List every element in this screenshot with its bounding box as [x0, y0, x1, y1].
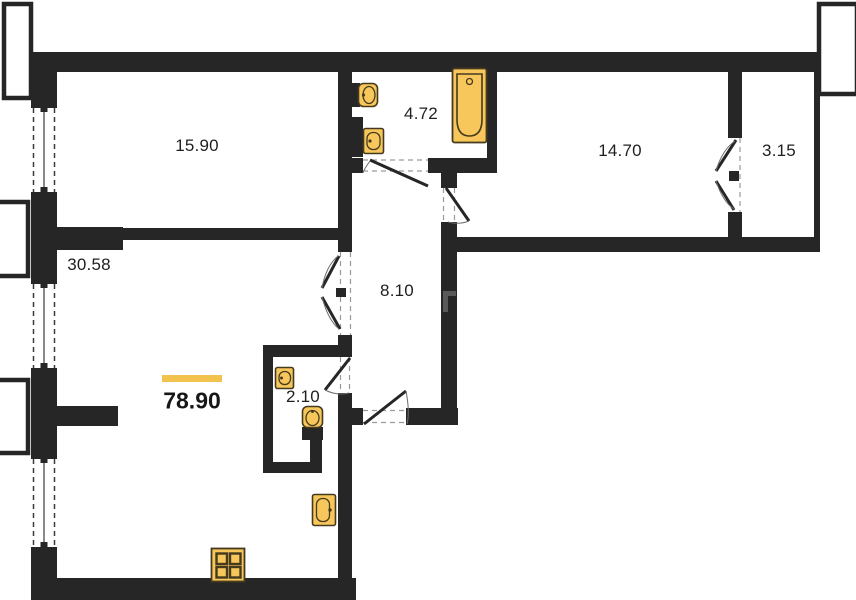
total-area-label: 78.90	[163, 388, 221, 415]
wall-hallway-bottom-left	[350, 408, 363, 425]
wall-bathroom-bottom-right	[428, 158, 497, 173]
stove-icon	[212, 549, 245, 582]
wall-left-3	[31, 368, 57, 459]
exterior-box-top-left	[4, 4, 31, 98]
windows	[34, 106, 55, 548]
wall-spine-lower	[338, 393, 352, 583]
walls	[31, 52, 820, 600]
room-label-hallway: 8.10	[380, 281, 414, 301]
wall-balcony-upper	[728, 72, 742, 138]
door-room-top-right	[444, 188, 470, 223]
wall-bottom	[31, 578, 356, 600]
floor-plan: 15.90 4.72 14.70 3.15 30.58 8.10 2.10 78…	[0, 0, 856, 600]
room-label-top-left: 15.90	[175, 136, 219, 156]
window-3	[34, 457, 55, 548]
wall-bath-sink-partition	[348, 117, 363, 157]
exterior-box-top-right	[819, 4, 856, 94]
room-label-balcony: 3.15	[762, 141, 796, 161]
wall-kitchen-stub	[57, 406, 118, 426]
window-1	[34, 106, 55, 193]
door-bathroom	[363, 160, 428, 186]
door-double-living	[322, 252, 351, 335]
wc-toilet-icon	[303, 407, 323, 428]
wall-room2-bottom	[441, 237, 820, 252]
room-label-top-right: 14.70	[598, 141, 642, 161]
room-label-living: 30.58	[67, 255, 111, 275]
wall-wc-toilet-back	[302, 427, 323, 440]
wall-hallway-right-lower	[441, 222, 457, 425]
window-2	[34, 282, 55, 369]
wall-left-2	[31, 192, 57, 284]
wc-sink-icon	[276, 368, 294, 389]
wall-top	[31, 52, 820, 72]
wall-bathroom-bottom-left	[338, 158, 363, 173]
door-balcony	[716, 138, 740, 212]
wall-balcony-right	[814, 72, 820, 248]
wall-hallway-bottom-right	[406, 408, 458, 425]
door-hallway-living	[363, 391, 408, 424]
wall-hallway-right-upper	[441, 158, 457, 188]
kitchen-sink-icon	[313, 495, 336, 526]
wall-bathtub-side	[487, 72, 497, 173]
bathtub-icon	[453, 69, 487, 143]
sink-icon	[364, 129, 384, 154]
wall-wc-left	[263, 345, 273, 473]
exterior-box-mid-left	[0, 202, 28, 276]
wall-wc-duct	[310, 440, 322, 473]
total-area-highlight	[162, 375, 222, 382]
wall-left-1	[31, 52, 57, 108]
exterior-box-bottom-left	[0, 380, 28, 453]
toilet-icon	[359, 84, 378, 107]
room-label-bathroom: 4.72	[404, 104, 438, 124]
wall-wc-top	[263, 345, 352, 357]
wall-room1-bottom-thick	[57, 227, 123, 250]
room-label-wc: 2.10	[286, 387, 320, 407]
floor-plan-drawing	[0, 0, 856, 600]
wall-balcony-lower	[728, 212, 742, 252]
wall-room1-bottom-thin	[123, 228, 338, 240]
door-wc	[325, 357, 350, 394]
